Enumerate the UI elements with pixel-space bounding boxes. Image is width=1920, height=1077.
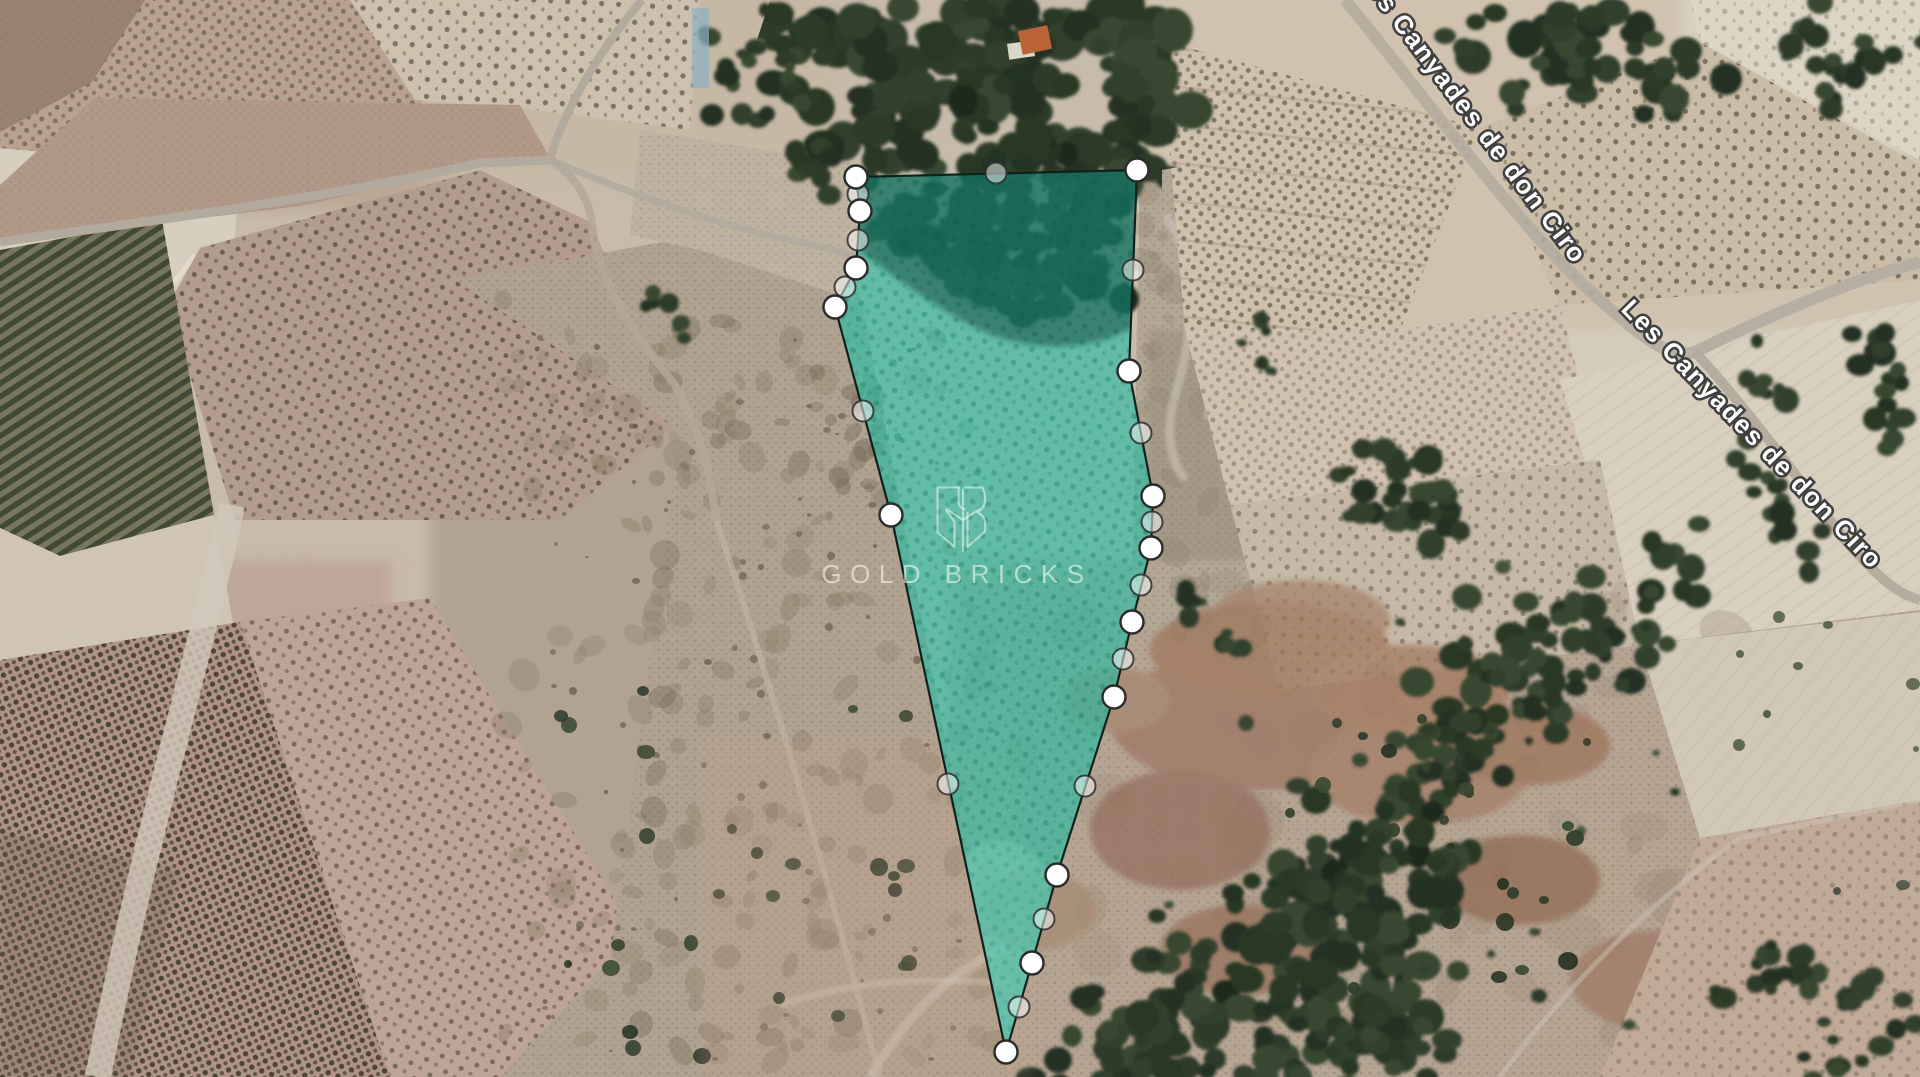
svg-text:GOLD BRICKS: GOLD BRICKS [821, 559, 1092, 589]
